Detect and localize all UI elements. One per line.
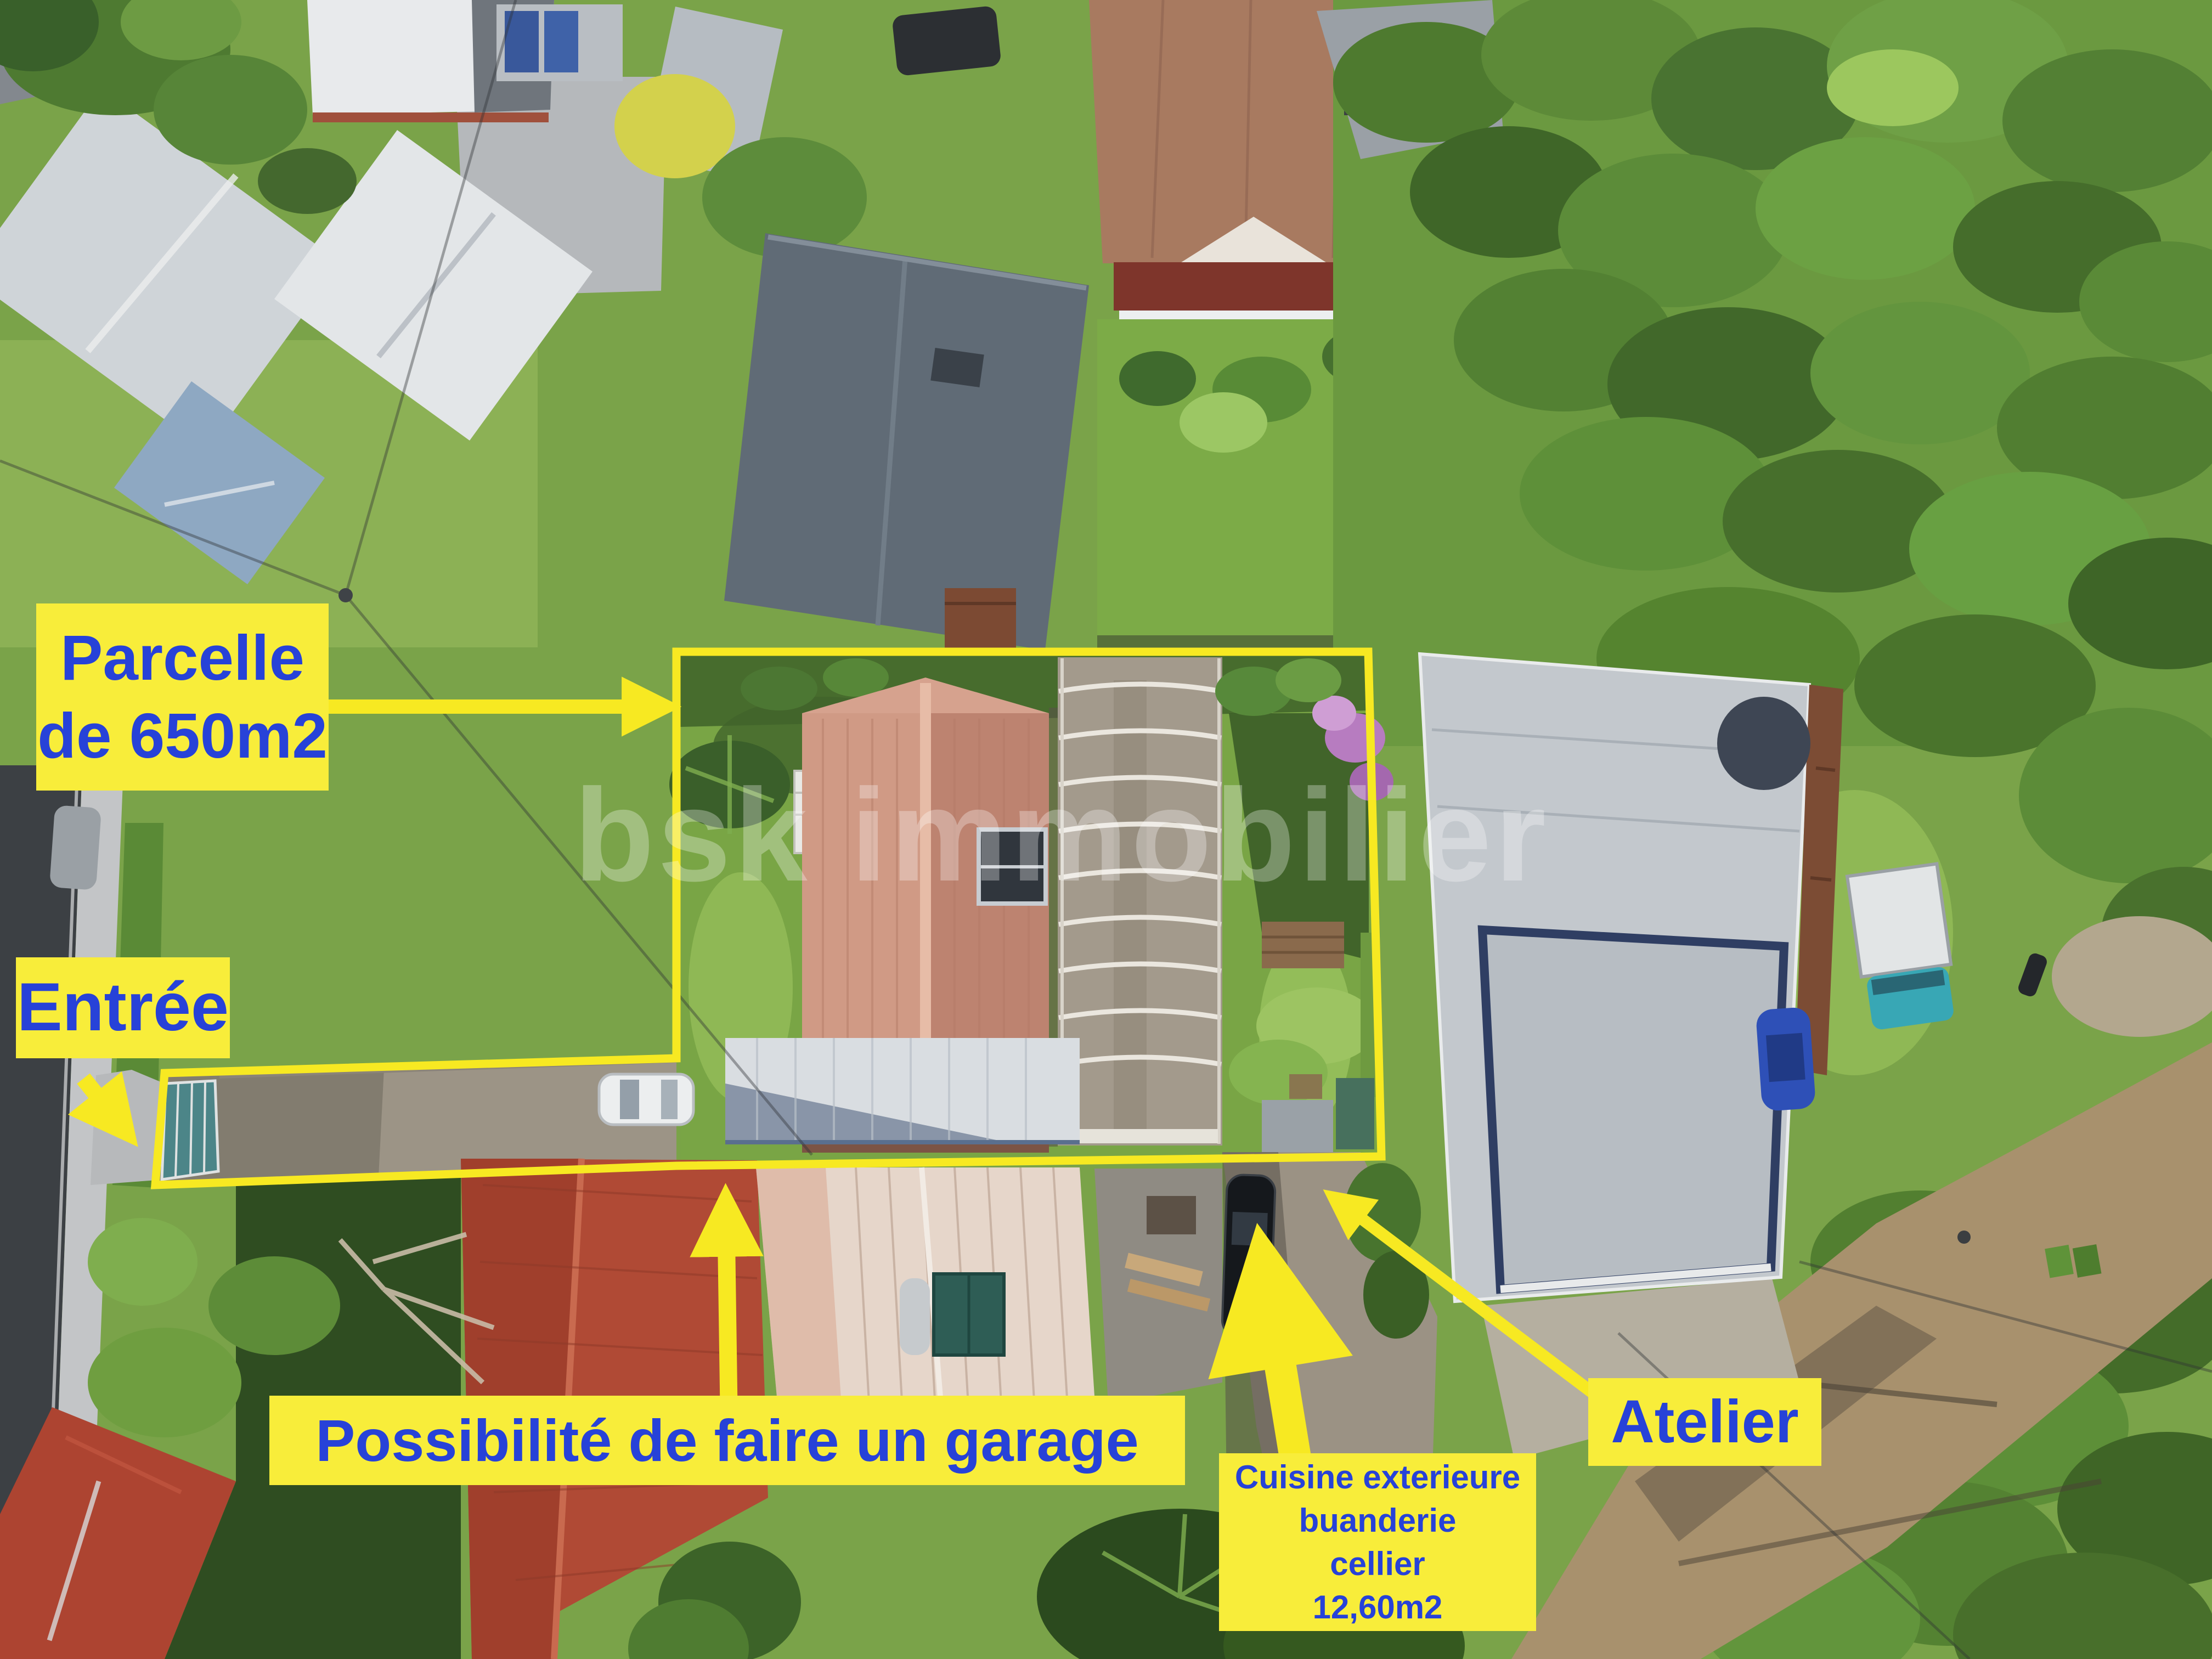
garage-arrow	[726, 1201, 729, 1426]
label-parcelle-line1: Parcelle	[60, 619, 304, 697]
garage-house	[756, 1167, 1094, 1421]
label-cuisine-line1: Cuisine exterieure	[1235, 1455, 1520, 1499]
blue-car	[1756, 1007, 1816, 1111]
label-parcelle-line2: de 650m2	[37, 697, 328, 775]
white-car	[599, 1074, 693, 1125]
label-cuisine: Cuisine exterieure buanderie cellier 12,…	[1219, 1453, 1536, 1631]
label-garage: Possibilité de faire un garage	[269, 1396, 1185, 1485]
label-parcelle: Parcelle de 650m2	[36, 603, 329, 791]
label-cuisine-line2: buanderie	[1299, 1499, 1457, 1542]
umbrella	[1717, 697, 1810, 790]
label-entree: Entrée	[16, 957, 230, 1058]
label-entree-text: Entrée	[17, 966, 229, 1049]
label-atelier: Atelier	[1588, 1378, 1821, 1466]
green-bin	[2073, 1244, 2102, 1278]
label-cuisine-line4: 12,60m2	[1313, 1585, 1443, 1629]
label-cuisine-line3: cellier	[1330, 1542, 1425, 1585]
label-atelier-text: Atelier	[1611, 1385, 1798, 1459]
aerial-photo-annotated: bsk immobilier Parcelle de 650m2 Entrée …	[0, 0, 2212, 1659]
carport-roof	[725, 1038, 1080, 1142]
green-bin	[2045, 1245, 2074, 1278]
cuisine-exterieure-roof	[1262, 1100, 1333, 1152]
watermark: bsk immobilier	[574, 761, 1549, 909]
label-garage-text: Possibilité de faire un garage	[315, 1404, 1138, 1477]
